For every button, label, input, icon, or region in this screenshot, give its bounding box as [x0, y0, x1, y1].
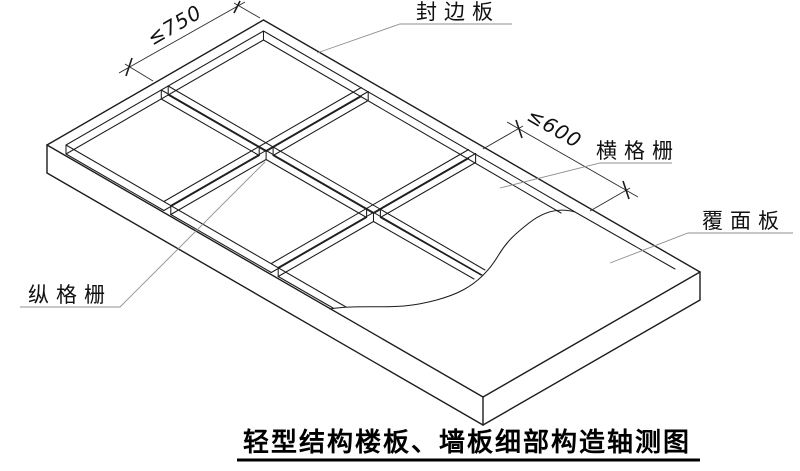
drawing-title: 轻型结构楼板、墙板细部构造轴测图 — [243, 427, 691, 458]
slab-outline — [47, 20, 700, 425]
longitudinal-joist-label: 纵格栅 — [28, 283, 112, 307]
axonometric-drawing-canvas: ≤750 ≤600 封边板 横格栅 覆面板 纵格栅 轻型结构楼板、墙板细部构造轴… — [0, 0, 800, 471]
edge-board-label: 封边板 — [416, 0, 500, 24]
panel-construction-diagram: ≤750 ≤600 封边板 横格栅 覆面板 纵格栅 轻型结构楼板、墙板细部构造轴… — [0, 0, 800, 471]
cover-panel-label: 覆面板 — [702, 209, 786, 233]
transverse-joist-label: 横格栅 — [596, 139, 680, 163]
transverse-joist-2-lines — [271, 150, 475, 277]
dim-750-text: ≤750 — [143, 0, 206, 50]
drawing-title-block: 轻型结构楼板、墙板细部构造轴测图 — [237, 427, 700, 460]
dimension-750: ≤750 — [119, 0, 260, 81]
edge-board-lines — [66, 31, 575, 308]
leader-lines — [20, 24, 793, 307]
transverse-joist-1-lines — [164, 88, 368, 215]
cover-panel-break-line — [330, 210, 675, 309]
dim-600-text: ≤600 — [523, 103, 586, 153]
